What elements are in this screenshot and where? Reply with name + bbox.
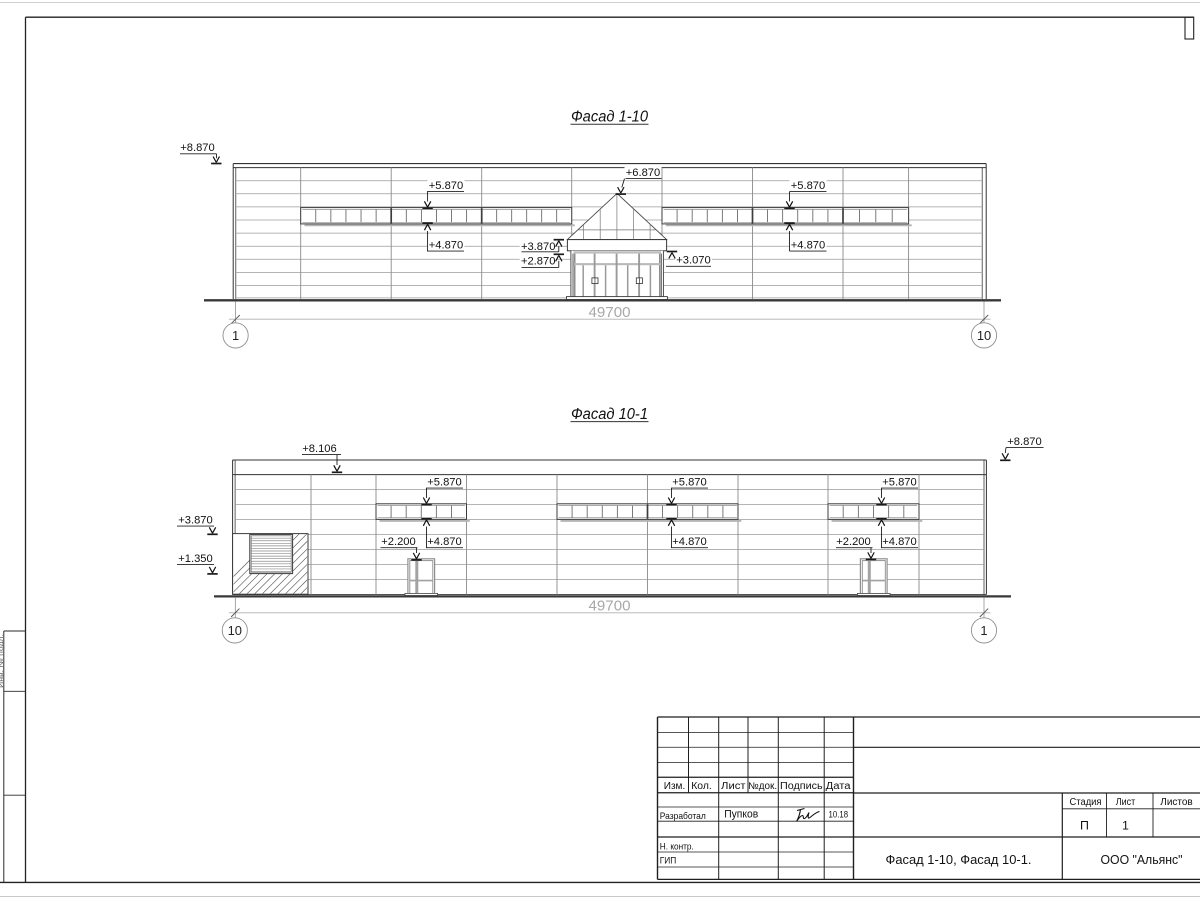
svg-text:Лист: Лист: [721, 781, 746, 792]
svg-text:П: П: [1080, 819, 1089, 833]
svg-text:ГИП: ГИП: [660, 855, 677, 866]
svg-text:+4.870: +4.870: [791, 240, 826, 252]
svg-text:10.18: 10.18: [829, 810, 849, 821]
svg-text:Фасад 1-10: Фасад 1-10: [571, 109, 648, 126]
svg-text:49700: 49700: [589, 305, 631, 321]
svg-text:+1.350: +1.350: [178, 553, 213, 565]
svg-text:ООО "Альянс": ООО "Альянс": [1101, 852, 1183, 867]
svg-text:+4.870: +4.870: [882, 536, 917, 548]
svg-text:Кол.: Кол.: [691, 781, 712, 792]
svg-text:Листов: Листов: [1160, 797, 1193, 808]
svg-text:+4.870: +4.870: [429, 240, 464, 252]
svg-text:+5.870: +5.870: [672, 477, 707, 489]
svg-text:+3.870: +3.870: [521, 241, 556, 253]
svg-text:+4.870: +4.870: [427, 536, 462, 548]
svg-text:1: 1: [232, 328, 239, 343]
svg-text:Подпись: Подпись: [780, 781, 823, 792]
svg-text:+5.870: +5.870: [429, 180, 464, 192]
svg-text:+4.870: +4.870: [672, 536, 707, 548]
svg-text:Стадия: Стадия: [1070, 797, 1102, 808]
svg-text:Разработал: Разработал: [660, 810, 706, 821]
svg-text:Дата: Дата: [826, 781, 852, 792]
svg-text:+8.870: +8.870: [1007, 436, 1042, 448]
svg-text:Лист: Лист: [1116, 797, 1136, 808]
svg-text:49700: 49700: [589, 599, 631, 615]
svg-text:+8.106: +8.106: [302, 443, 337, 455]
svg-text:+8.870: +8.870: [180, 142, 215, 154]
svg-text:№док.: №док.: [748, 781, 777, 792]
svg-text:+5.870: +5.870: [882, 477, 917, 489]
svg-text:Изм.: Изм.: [664, 781, 686, 792]
svg-text:1: 1: [1122, 819, 1129, 833]
svg-text:+6.870: +6.870: [626, 167, 661, 179]
svg-text:+2.200: +2.200: [836, 536, 871, 548]
svg-text:+2.870: +2.870: [521, 255, 556, 267]
svg-text:Фасад 1-10, Фасад 10-1.: Фасад 1-10, Фасад 10-1.: [886, 852, 1032, 867]
svg-text:Инв. № подл.: Инв. № подл.: [0, 634, 5, 688]
svg-text:+5.870: +5.870: [791, 180, 826, 192]
svg-text:+3.870: +3.870: [178, 515, 213, 527]
svg-text:+3.070: +3.070: [676, 255, 711, 267]
svg-text:Пупков: Пупков: [724, 809, 758, 821]
svg-text:10: 10: [977, 328, 991, 343]
svg-text:Н. контр.: Н. контр.: [660, 840, 694, 851]
svg-text:10: 10: [228, 623, 242, 638]
svg-text:+2.200: +2.200: [381, 536, 416, 548]
svg-text:1: 1: [980, 623, 987, 638]
svg-text:+5.870: +5.870: [427, 477, 462, 489]
svg-text:Фасад 10-1: Фасад 10-1: [571, 406, 648, 423]
